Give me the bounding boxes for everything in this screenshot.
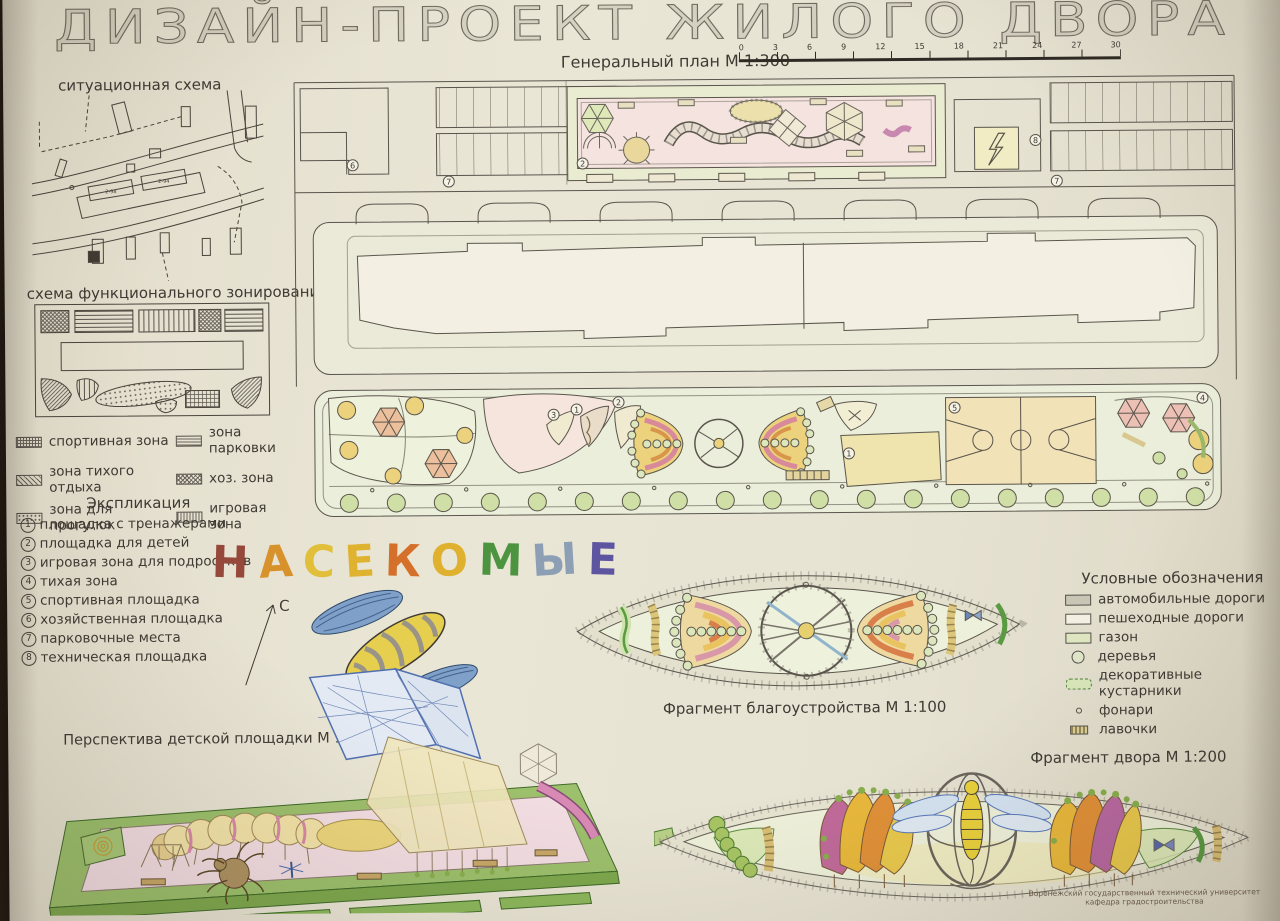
zoning-legend-item: хоз. зона bbox=[176, 462, 294, 495]
legend-label: фонари bbox=[1099, 702, 1153, 718]
scale-tick: 21 bbox=[993, 41, 1003, 50]
scale-tick: 15 bbox=[914, 42, 924, 51]
legend-swatch bbox=[1065, 632, 1091, 643]
zone-pattern-swatch bbox=[16, 436, 42, 447]
scale-tick: 30 bbox=[1111, 40, 1121, 49]
legend-label: декоративные кустарники bbox=[1099, 666, 1280, 699]
zoning-legend-item: зона парковки bbox=[176, 424, 294, 457]
plan-number: 2 bbox=[616, 398, 621, 407]
legend-item: газон bbox=[1065, 628, 1280, 646]
legend-item: автомобильные дороги bbox=[1065, 590, 1280, 608]
legend-label: газон bbox=[1098, 629, 1138, 645]
plan-number: 7 bbox=[1054, 177, 1059, 186]
item-number: 3 bbox=[21, 556, 36, 571]
item-label: площадка для детей bbox=[40, 534, 190, 554]
theme-letter: Е bbox=[344, 539, 377, 585]
explication-item: 7 парковочные места bbox=[21, 628, 257, 649]
legend-item: лавочки bbox=[1066, 720, 1280, 738]
map-building-label: 2-98 bbox=[105, 189, 116, 195]
theme-letter: Н bbox=[211, 541, 249, 586]
map-building-label: 2-94 bbox=[158, 179, 169, 185]
item-label: тихая зона bbox=[40, 572, 118, 592]
zone-label: спортивная зона bbox=[49, 433, 169, 450]
theme-letter: О bbox=[430, 538, 470, 584]
theme-letter: К bbox=[384, 539, 421, 584]
item-label: площадка с тренажерами bbox=[39, 514, 226, 534]
theme-letter: М bbox=[478, 539, 523, 584]
poster-paper: ДИЗАЙН-ПРОЕКТ ЖИЛОГО ДВОРА ситуационная … bbox=[2, 0, 1280, 921]
zone-label: хоз. зона bbox=[209, 470, 274, 487]
explication-item: 6 хозяйственная площадка bbox=[21, 609, 257, 630]
plan-number: 5 bbox=[952, 404, 957, 413]
legend-label: деревья bbox=[1097, 648, 1156, 664]
legend-item: декоративные кустарники bbox=[1066, 666, 1280, 700]
explication-item: 8 техническая площадка bbox=[21, 647, 257, 668]
item-label: техническая площадка bbox=[40, 647, 207, 667]
item-number: 4 bbox=[21, 575, 36, 590]
scale-tick: 24 bbox=[1032, 41, 1042, 50]
legend-list: автомобильные дороги пешеходные дороги г… bbox=[1065, 590, 1280, 738]
item-label: парковочные места bbox=[40, 629, 181, 649]
legend-swatch bbox=[1065, 594, 1091, 605]
legend-item: пешеходные дороги bbox=[1065, 609, 1280, 627]
scale-tick: 0 bbox=[739, 43, 744, 52]
legend-swatch bbox=[1076, 708, 1082, 714]
legend-swatch bbox=[1065, 613, 1091, 624]
scale-tick: 12 bbox=[875, 42, 885, 51]
general-plan-drawing: 6 7 2 8 7 3 1 2 1 5 4 bbox=[286, 67, 1247, 538]
zoning-legend-item: зона тихого отдыха bbox=[16, 463, 174, 496]
zone-pattern-swatch bbox=[176, 435, 202, 446]
situational-map: 2-98 2-94 bbox=[31, 90, 265, 284]
legend-label: лавочки bbox=[1099, 721, 1157, 737]
zone-label: зона тихого отдыха bbox=[49, 463, 174, 496]
item-label: хозяйственная площадка bbox=[40, 609, 223, 629]
zoning-diagram bbox=[33, 301, 272, 419]
scale-tick: 18 bbox=[954, 41, 964, 50]
scale-tick: 9 bbox=[841, 42, 846, 51]
zoning-legend-item: спортивная зона bbox=[16, 425, 174, 458]
theme-letter: С bbox=[302, 540, 335, 585]
scale-tick: 27 bbox=[1071, 41, 1081, 50]
improvement-fragment-drawing bbox=[569, 562, 1028, 698]
improvement-fragment-label: Фрагмент благоустройства М 1:100 bbox=[663, 698, 947, 718]
legend-title: Условные обозначения bbox=[1065, 568, 1280, 588]
legend-item: фонари bbox=[1066, 701, 1280, 719]
legend-item: деревья bbox=[1065, 647, 1280, 665]
legend-label: автомобильные дороги bbox=[1098, 590, 1265, 607]
plan-number: 3 bbox=[551, 411, 556, 420]
zone-pattern-swatch bbox=[176, 473, 202, 484]
plan-number: 4 bbox=[1200, 394, 1205, 403]
zone-label: зона парковки bbox=[209, 424, 294, 457]
map-legend: Условные обозначения автомобильные дорог… bbox=[1065, 568, 1280, 741]
courtyard-fragment-drawing bbox=[653, 743, 1254, 910]
playground-perspective-drawing bbox=[28, 665, 630, 916]
explication-item: 1 площадка с тренажерами bbox=[20, 514, 256, 535]
plan-number: 1 bbox=[574, 406, 579, 415]
photo-background: ДИЗАЙН-ПРОЕКТ ЖИЛОГО ДВОРА ситуационная … bbox=[0, 0, 1280, 921]
scale-bar: 036912151821242730 bbox=[739, 40, 1121, 62]
item-number: 1 bbox=[20, 518, 35, 533]
theme-letter: А bbox=[257, 540, 294, 586]
zone-pattern-swatch bbox=[16, 474, 42, 485]
explication-item: 5 спортивная площадка bbox=[21, 590, 257, 611]
footer-credits: Воронежский государственный технический … bbox=[994, 887, 1280, 907]
scale-tick: 6 bbox=[807, 43, 812, 52]
legend-label: пешеходные дороги bbox=[1098, 609, 1244, 626]
theme-word: Н А С Е К О М Ы Е bbox=[212, 538, 618, 585]
legend-swatch bbox=[1066, 678, 1092, 689]
legend-swatch bbox=[1070, 725, 1088, 734]
north-label: С bbox=[279, 597, 290, 615]
scale-tick: 3 bbox=[773, 43, 778, 52]
plan-number: 8 bbox=[1033, 136, 1038, 145]
explication-title: Экспликация bbox=[20, 493, 256, 513]
plan-number: 7 bbox=[446, 178, 451, 187]
scale-bar-line bbox=[739, 49, 1121, 62]
item-number: 5 bbox=[21, 594, 36, 609]
plan-number: 2 bbox=[580, 159, 585, 168]
item-number: 2 bbox=[21, 537, 36, 552]
item-number: 7 bbox=[21, 632, 36, 647]
plan-number: 6 bbox=[350, 161, 355, 170]
item-number: 6 bbox=[21, 613, 36, 628]
zoning-scheme-label: схема функционального зонирования bbox=[27, 282, 329, 302]
legend-swatch bbox=[1072, 650, 1085, 663]
item-label: спортивная площадка bbox=[40, 591, 200, 611]
item-number: 8 bbox=[21, 651, 36, 666]
plan-number: 1 bbox=[846, 449, 851, 458]
